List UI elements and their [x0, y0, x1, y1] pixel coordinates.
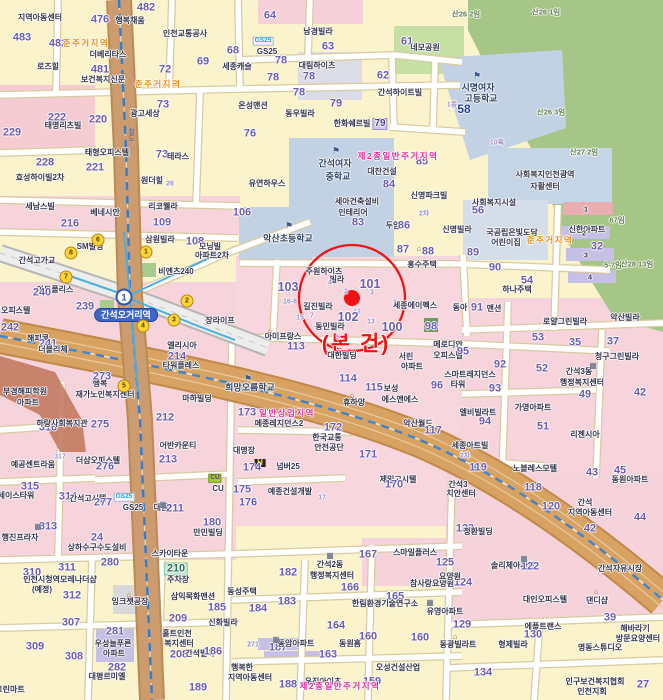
map-label: 효성하이빌2차	[16, 174, 65, 182]
map-label: 91	[471, 303, 483, 314]
shop-icon: ⌂	[268, 327, 273, 335]
map-label: 리젠시아	[570, 431, 599, 439]
map-label: 모닝빌	[199, 243, 221, 251]
map-label: 보건복지신문	[81, 76, 125, 84]
map-label: 78	[293, 88, 305, 99]
school-icon: ⚑	[332, 147, 340, 156]
map-label: 지역아동센터	[228, 674, 272, 682]
map-label: 114	[339, 374, 357, 385]
map-label: 164	[327, 621, 345, 632]
map-label: 동원홈	[339, 640, 361, 648]
map-label: 산26 2임	[452, 10, 480, 18]
map-label: 리오피스텔	[0, 307, 30, 315]
map-label: 83	[352, 218, 364, 229]
map-label: 174	[243, 463, 261, 474]
map-label: 72	[159, 65, 171, 76]
map-label: 122	[521, 562, 539, 573]
map-label: 281	[106, 627, 124, 638]
map-label: 180	[203, 518, 221, 529]
map-label: 130	[524, 630, 542, 641]
map-label: 160	[411, 633, 429, 644]
map-label: 5-7임	[604, 261, 622, 269]
map-label: 안전공단	[314, 444, 343, 452]
map-label: 90	[489, 263, 501, 274]
map-label: 275	[91, 420, 109, 431]
shop-icon: ⌂	[594, 588, 599, 596]
map-label: 113	[287, 342, 305, 353]
map-label: 대림하이츠	[299, 62, 336, 70]
map-label: 87	[397, 245, 409, 256]
map-label: 220	[89, 115, 107, 126]
map-label: 엘리시아	[167, 342, 196, 350]
map-label: 행진프라자	[2, 534, 39, 542]
map-label: 참사랑요양원	[410, 580, 454, 588]
map-label: 행복채움	[115, 17, 144, 25]
map-label: 309	[26, 642, 44, 653]
map-label: 인천지회	[577, 688, 606, 696]
map-label: 173	[238, 408, 256, 419]
map-label: 광고세상	[130, 110, 159, 118]
map-label: 리코웰라	[148, 203, 177, 211]
map-label: 170	[385, 480, 403, 491]
map-label: 희망오름학교	[225, 384, 275, 393]
map-label: 상하수구수도설비	[68, 544, 127, 552]
map-label: 간석	[578, 499, 593, 507]
map-label: 한국교통	[312, 434, 341, 442]
map-label: 7	[310, 313, 314, 320]
map-label: 행정복지센터	[560, 379, 604, 387]
map-label: 15	[296, 315, 304, 322]
map-label: 대찬건설	[367, 168, 396, 176]
map-label: 312	[63, 591, 81, 602]
map-label: 마하빌딩	[182, 395, 211, 403]
map-label: 134	[474, 668, 492, 679]
map-label: 213	[159, 455, 177, 466]
map-label: 103	[278, 281, 299, 294]
map-label: 간석여자	[318, 160, 351, 169]
map-label: 홍수주택	[407, 261, 436, 269]
map-label: 에스앤에스	[382, 396, 419, 404]
label-layer: (본 건)간석오거리역철도GS25GS25GS25GS25CUCUH483482…	[0, 0, 663, 700]
map-label: 치안센터	[446, 490, 475, 498]
map-label: 242	[1, 323, 19, 334]
map-label: 메종레지던스2	[255, 420, 304, 428]
map-label: 사회복지인천광역	[516, 171, 575, 179]
map-label: 남경빌라	[303, 28, 332, 36]
map-label: 로즈힐	[37, 63, 59, 71]
map-label: 형제빌라	[498, 641, 527, 649]
map-label: 삼원빌라	[145, 236, 174, 244]
map-label: 유연하우스	[249, 180, 286, 188]
map-label: 휴하양	[343, 399, 365, 407]
map-label: 하나주택	[502, 286, 531, 294]
school-icon: ⚑	[285, 222, 293, 231]
map-label: 94	[479, 417, 491, 428]
map-label: 산27 2임	[570, 148, 598, 156]
map-label: 56	[472, 206, 484, 217]
map-label: 산26 3임	[537, 108, 565, 116]
map-label: 넘버25	[276, 463, 300, 471]
map-label: 93	[489, 384, 501, 395]
map-label: 더베리타스	[90, 51, 127, 59]
map-label: 52	[536, 364, 548, 375]
map-label: 483	[13, 33, 31, 44]
map-label: 한림환경기술연구소	[352, 600, 418, 608]
map-label: 네모공원	[410, 44, 439, 52]
map-label: 가영아파트	[515, 404, 552, 412]
map-label: 2차	[419, 211, 429, 218]
map-label: 210	[164, 563, 188, 576]
map-label: 인천교통공사	[163, 30, 207, 38]
map-label: 43	[586, 468, 598, 479]
building-icon: ▦	[159, 501, 167, 509]
exit-badge: 7	[60, 271, 73, 284]
map-label: 163	[319, 650, 337, 661]
map-label: 216	[61, 219, 79, 230]
map-label: 대한빌딩	[327, 352, 356, 360]
building-icon: ▦	[326, 552, 334, 560]
map-label: 복지센터	[164, 640, 193, 648]
map-label: 185	[208, 603, 226, 614]
map-label: 그린마트	[0, 686, 25, 694]
map-label: 476	[91, 15, 109, 26]
map-label: 49	[579, 390, 591, 401]
map-label: 세종에이펙스	[393, 302, 437, 310]
map-label: 준주거지역	[135, 80, 182, 89]
map-label: (예정)	[32, 586, 52, 594]
map-label: 준주거지역	[527, 236, 574, 245]
map-label: 100	[382, 321, 403, 334]
map-label: 방문요양센터	[616, 635, 660, 643]
map-label: 아파트	[17, 399, 39, 407]
map-label: 산28 13임	[621, 260, 654, 268]
map-label: 보성	[384, 385, 399, 393]
map-label: 89	[467, 248, 479, 259]
map-label: 삼익목화맨션	[171, 593, 215, 601]
exit-badge: 2	[181, 295, 194, 308]
map-label: 10획	[490, 140, 504, 147]
cu-badge: CU	[208, 474, 221, 483]
map-label: 지역아동센터	[18, 14, 62, 22]
map-label: 17	[318, 495, 326, 502]
map-label: 악산빌라	[610, 314, 639, 322]
exit-badge: 4	[137, 320, 150, 333]
map-label: 277	[94, 498, 112, 509]
map-label: 3	[370, 290, 374, 297]
map-label: 세종캐슬	[222, 63, 251, 71]
map-label: 172	[324, 423, 342, 434]
map-label: 481	[91, 65, 109, 76]
map-label: 행복한	[231, 664, 253, 672]
map-label: 188	[279, 680, 297, 691]
map-label: 88	[422, 247, 434, 258]
map-label: 189	[189, 683, 207, 694]
subway-line1-icon: 1	[116, 289, 133, 306]
map-label: 태형오피스텔	[85, 149, 129, 157]
map-label: 대명장	[233, 447, 255, 455]
map-label: 준주거지역	[63, 39, 110, 48]
map-label: 자활센터	[530, 183, 559, 191]
map-label: 제2종일반주거지역	[300, 682, 381, 691]
map-label: 78	[275, 56, 287, 67]
map-label: 하랑사회복지관	[36, 420, 88, 428]
map-label: 84	[383, 180, 395, 191]
map-label: 32	[591, 242, 603, 253]
map-label: 120	[542, 502, 560, 513]
map-label: 신화빌라	[208, 619, 237, 627]
map-label: 스카이타운	[152, 550, 189, 558]
map-label: 280	[101, 558, 119, 569]
map-label: 간석2동	[317, 561, 344, 569]
map-label: 68	[227, 46, 239, 57]
gs25-badge: GS25	[253, 37, 274, 46]
map-label: 42	[634, 388, 646, 399]
map-label: 세이스타워	[0, 492, 34, 500]
map-label: 117	[424, 426, 442, 437]
map-label: 동광빌라트	[440, 641, 477, 649]
map-label: 간석자유시장	[598, 565, 642, 573]
map-label: 64	[264, 11, 276, 22]
map-label: 2차	[460, 453, 470, 460]
map-label: 182	[279, 568, 297, 579]
map-label: 95	[457, 347, 469, 358]
map-label: 106	[233, 208, 251, 219]
map-label: 96	[431, 381, 443, 392]
map-label: 동성주택	[227, 588, 256, 596]
school-icon: ⚑	[473, 72, 481, 81]
map-label: 118	[524, 483, 542, 494]
map-label: 109	[153, 218, 171, 229]
map-label: 92	[494, 360, 506, 371]
map-label: 160	[359, 632, 377, 643]
map-label: 273	[93, 372, 111, 383]
map-label: 간석하이트빌	[378, 89, 422, 97]
map-label: 239	[76, 302, 94, 313]
map-label: 철도	[128, 128, 135, 142]
map-label: 장라이프	[205, 317, 234, 325]
map-label: 79	[372, 118, 387, 130]
map-label: 중학교	[326, 173, 351, 182]
map-label: 98	[425, 322, 437, 333]
map-label: 125	[436, 558, 454, 569]
map-label: 로얄그린빌라	[543, 318, 587, 326]
school-icon: ⚑	[244, 375, 252, 384]
map-label: 58	[457, 103, 470, 115]
shop-icon: ⌂	[127, 591, 132, 599]
map-label: 세남스빌	[25, 203, 54, 211]
map-label: 어반카운티	[160, 442, 197, 450]
shop-icon: ⌂	[641, 622, 646, 630]
building-icon: ▦	[426, 599, 434, 607]
map-label: 길진빌라	[303, 303, 332, 311]
map-label: 인천시청역모레나더샵	[23, 576, 97, 584]
map-label: 63	[322, 42, 334, 53]
map-label: 44	[634, 513, 646, 524]
map-label: 온성맨션	[238, 102, 267, 110]
map-label: 베네시안	[90, 209, 119, 217]
map-label: 26	[166, 181, 174, 188]
map-label: 167	[359, 550, 377, 561]
map-label: 요양원	[439, 573, 461, 581]
map-label: 69	[197, 57, 209, 68]
map-label: 166	[341, 583, 359, 594]
map-label: 동민빌라	[315, 323, 344, 331]
map-label: 176	[239, 498, 257, 509]
map-label: 76	[244, 129, 256, 140]
map-label: 79	[330, 99, 342, 110]
map-label: 3	[584, 251, 588, 259]
map-canvas[interactable]: (본 건)간석오거리역철도GS25GS25GS25GS25CUCUH483482…	[0, 0, 663, 700]
map-label: 2	[344, 289, 348, 296]
map-label: 홀트인천	[162, 630, 191, 638]
map-label: 예종건설개발	[268, 488, 312, 496]
map-label: 아파트2차	[195, 252, 229, 260]
map-label: 시명여자	[461, 84, 494, 93]
map-label: 129	[453, 620, 471, 631]
map-label: 타워플레스	[163, 362, 200, 370]
building-icon: ▦	[520, 555, 528, 563]
exit-badge: 3	[168, 314, 181, 327]
map-label: 228	[36, 158, 54, 169]
map-label: 지역아동센터	[568, 509, 612, 517]
building-icon: ▦	[589, 362, 597, 370]
map-label: 229	[3, 128, 21, 139]
map-label: 인구보건복지협회	[566, 678, 625, 686]
map-label: 24	[91, 533, 103, 544]
map-label: 동원아파트	[612, 476, 649, 484]
map-label: 183	[278, 597, 296, 608]
map-label: 42	[584, 524, 596, 535]
map-label: 5	[336, 335, 340, 342]
map-label: 맨션	[487, 305, 502, 313]
map-label: 노블레스모텔	[513, 465, 557, 473]
map-label: 동우빌라	[285, 110, 314, 118]
map-label: 아파트	[103, 650, 125, 658]
station-badge: 간석오거리역	[94, 308, 158, 322]
map-label: 51	[537, 422, 549, 433]
map-label: 부경해피학원	[3, 388, 47, 396]
shop-icon: ⌂	[350, 392, 355, 400]
map-label: 신한아파트	[569, 226, 606, 234]
map-label: 184	[249, 604, 267, 615]
map-label: 211	[166, 504, 184, 515]
map-label: 더블리체	[38, 346, 67, 354]
map-label: 명동스튜디오	[578, 644, 622, 652]
map-label: 신명파크빌	[411, 192, 448, 200]
map-label: 308	[65, 652, 83, 663]
map-label: 1	[584, 205, 588, 213]
map-label: 간석3	[448, 481, 467, 489]
map-label: 16-8	[283, 299, 297, 306]
map-label: 317	[54, 454, 66, 461]
exit-badge: 6	[92, 234, 105, 247]
map-label: 119	[469, 463, 487, 474]
exit-badge: 5	[118, 380, 131, 393]
map-label: 53	[532, 333, 544, 344]
map-label: 악산초등학교	[263, 235, 313, 244]
map-label: CU	[212, 485, 224, 493]
map-label: 주차장	[167, 576, 189, 584]
map-label: 4	[588, 273, 592, 281]
map-label: 186	[204, 647, 222, 658]
map-label: 101	[360, 278, 381, 291]
map-label: 39	[604, 613, 616, 624]
map-label: 동아	[453, 304, 468, 312]
map-label: 제2종일반주거지역	[358, 152, 439, 161]
gs25-badge: GS25	[114, 493, 135, 502]
map-label: 27	[637, 680, 649, 691]
map-label: 댄디샵	[586, 597, 608, 605]
map-label: 35	[569, 338, 581, 349]
map-label: 대인오피스텔	[523, 596, 567, 604]
exit-badge: 8	[65, 247, 78, 260]
map-label: 대평르미엘	[89, 673, 126, 681]
map-label: 우성늘푸른	[95, 640, 132, 648]
map-label: 스마일플러스	[393, 549, 437, 557]
map-label: 만민빌딩	[193, 529, 222, 537]
map-label: 311	[58, 563, 76, 574]
map-label: 221	[86, 163, 104, 174]
map-label: 예공센트라움	[11, 461, 55, 469]
map-label: 타워	[451, 381, 466, 389]
map-label: 67임	[609, 216, 624, 224]
map-label: 54	[521, 276, 533, 287]
map-label: 태명리츠빌	[45, 122, 82, 130]
map-label: 세아건축설비	[335, 198, 379, 206]
map-label: 산26 1임	[532, 8, 560, 16]
map-label: 1동	[447, 102, 457, 109]
map-label: 오성건설산업	[376, 664, 420, 672]
map-label: 240	[33, 288, 51, 299]
building-icon: ▦	[272, 636, 280, 644]
map-label: 잉크젯공장	[112, 598, 149, 606]
map-label: 스마트레지던스	[444, 371, 496, 379]
map-label: 한화쉐르빌	[334, 120, 371, 128]
map-label: 307	[62, 618, 80, 629]
map-label: 간석고가교	[19, 257, 56, 265]
shop-icon: ⌂	[453, 633, 458, 641]
map-label: 115	[365, 383, 383, 394]
map-label: 13	[367, 319, 375, 326]
map-label: 어린이집	[491, 239, 520, 247]
map-label: 171	[359, 450, 377, 461]
map-label: GS25	[123, 504, 143, 512]
building-icon: ▦	[34, 523, 42, 531]
map-label: 세종아트빌	[452, 442, 489, 450]
map-label: 동암아파트	[278, 640, 315, 648]
map-label: 78	[303, 72, 315, 83]
map-label: 86	[398, 221, 410, 232]
map-label: 276	[96, 462, 114, 473]
map-label: 정환빌딩	[463, 528, 492, 536]
map-label: 서린	[399, 353, 414, 361]
map-label: 209	[169, 614, 187, 625]
map-label: 62	[377, 71, 389, 82]
map-label: 테라스	[167, 153, 189, 161]
map-label: 일반상업지역	[259, 409, 315, 418]
map-label: 2	[582, 229, 586, 237]
map-label: 175	[233, 485, 251, 496]
map-label: 비엔츠240	[158, 268, 193, 276]
exit-badge: 1	[140, 246, 153, 259]
map-label: 212	[156, 413, 174, 424]
map-label: 아파트	[401, 363, 423, 371]
map-label: 271	[247, 642, 259, 649]
map-label: 행정복지센터	[310, 572, 354, 580]
map-label: 78	[267, 73, 279, 84]
map-label: 4	[328, 280, 332, 287]
map-label: 유영아파트	[427, 608, 464, 616]
